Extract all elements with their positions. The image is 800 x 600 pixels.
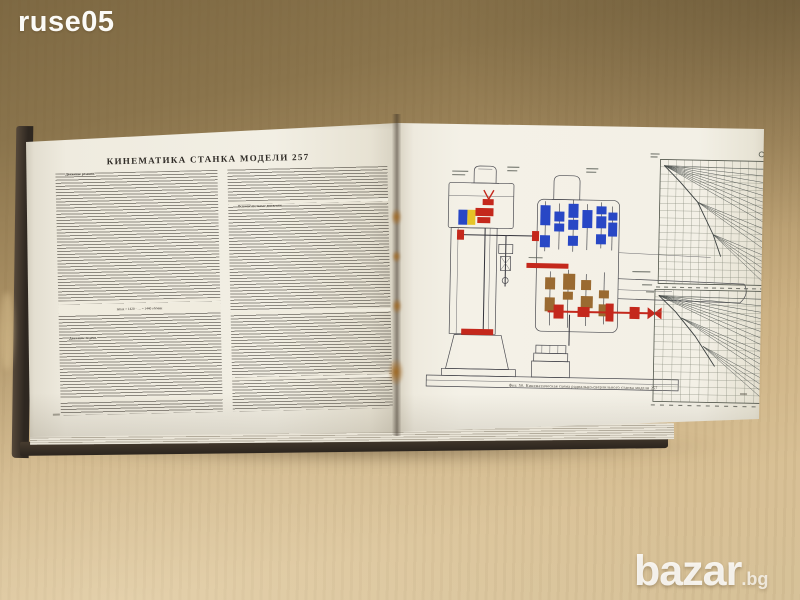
book-gutter <box>392 114 401 436</box>
feed-gears-brown <box>545 273 610 316</box>
left-page-content: КИНЕМАТИКА СТАНКА МОДЕЛИ 257 Движение ре… <box>20 112 401 442</box>
gearbox-housing <box>535 199 620 333</box>
drive-shafts <box>459 228 571 346</box>
text-column-1 <box>55 170 222 416</box>
machine-base <box>426 375 678 391</box>
page-number-smudge-right <box>740 393 747 395</box>
feed-bar <box>526 263 568 269</box>
spindle-shaft-red <box>547 302 661 322</box>
foxing-stain <box>392 250 401 263</box>
right-page: Фиг. 50. Кинематическая схема радиально-… <box>398 110 768 440</box>
tiny-label-smudges <box>450 165 652 272</box>
work-table <box>536 345 566 354</box>
machine-outline <box>426 165 748 392</box>
marketplace-watermark: bazar.bg <box>634 548 794 594</box>
feed-chart <box>651 289 774 407</box>
speed-formula: nmax = 1420 · … = 1440 об/мин <box>58 302 220 316</box>
paragraph-lead-auxiliary-motions: Вспомогательные движения. <box>238 204 282 208</box>
right-page-content: Фиг. 50. Кинематическая схема радиально-… <box>395 106 771 443</box>
paragraph-gap <box>61 396 223 402</box>
column-outline <box>449 227 497 334</box>
photo-of-open-book: { "scene": { "photo_watermark": "ruse05"… <box>0 0 800 600</box>
foxing-stain <box>388 358 404 386</box>
text-column-2 <box>227 166 392 412</box>
marketplace-watermark-name: bazar <box>634 547 741 595</box>
arm-outline <box>618 279 744 284</box>
gearbox-shafts <box>543 199 612 328</box>
table-stain <box>0 292 14 370</box>
column-elevating-gear <box>461 329 493 336</box>
left-page: КИНЕМАТИКА СТАНКА МОДЕЛИ 257 Движение ре… <box>24 116 398 438</box>
motor-2-outline <box>554 175 580 199</box>
page-number-smudge-left <box>53 414 60 416</box>
foxing-stain <box>392 298 402 314</box>
speed-chart <box>656 159 772 289</box>
chart-corner-marks <box>642 150 764 295</box>
paragraph-gap <box>231 308 391 314</box>
speed-gears-blue <box>540 203 618 248</box>
paragraph-gap <box>228 198 388 204</box>
paragraph-lead-feed-motion: Движение подачи. <box>69 337 97 341</box>
feed-screw-detail <box>498 244 513 283</box>
marketplace-watermark-tld: .bg <box>741 569 768 589</box>
paragraph-lead-cutting-motion: Движение резания. <box>65 173 94 177</box>
paragraph-gap <box>232 374 392 380</box>
motor-1-outline <box>474 166 496 183</box>
paragraph-gap <box>58 298 220 304</box>
column-base-cone <box>445 334 509 369</box>
foxing-stain <box>391 208 402 226</box>
photo-watermark: ruse05 <box>18 6 115 39</box>
clutch-gear-group <box>457 190 540 242</box>
page-title: КИНЕМАТИКА СТАНКА МОДЕЛИ 257 <box>21 150 395 168</box>
figure-caption: Фиг. 50. Кинематическая схема радиально-… <box>468 382 698 391</box>
kinematic-diagram <box>408 137 781 409</box>
